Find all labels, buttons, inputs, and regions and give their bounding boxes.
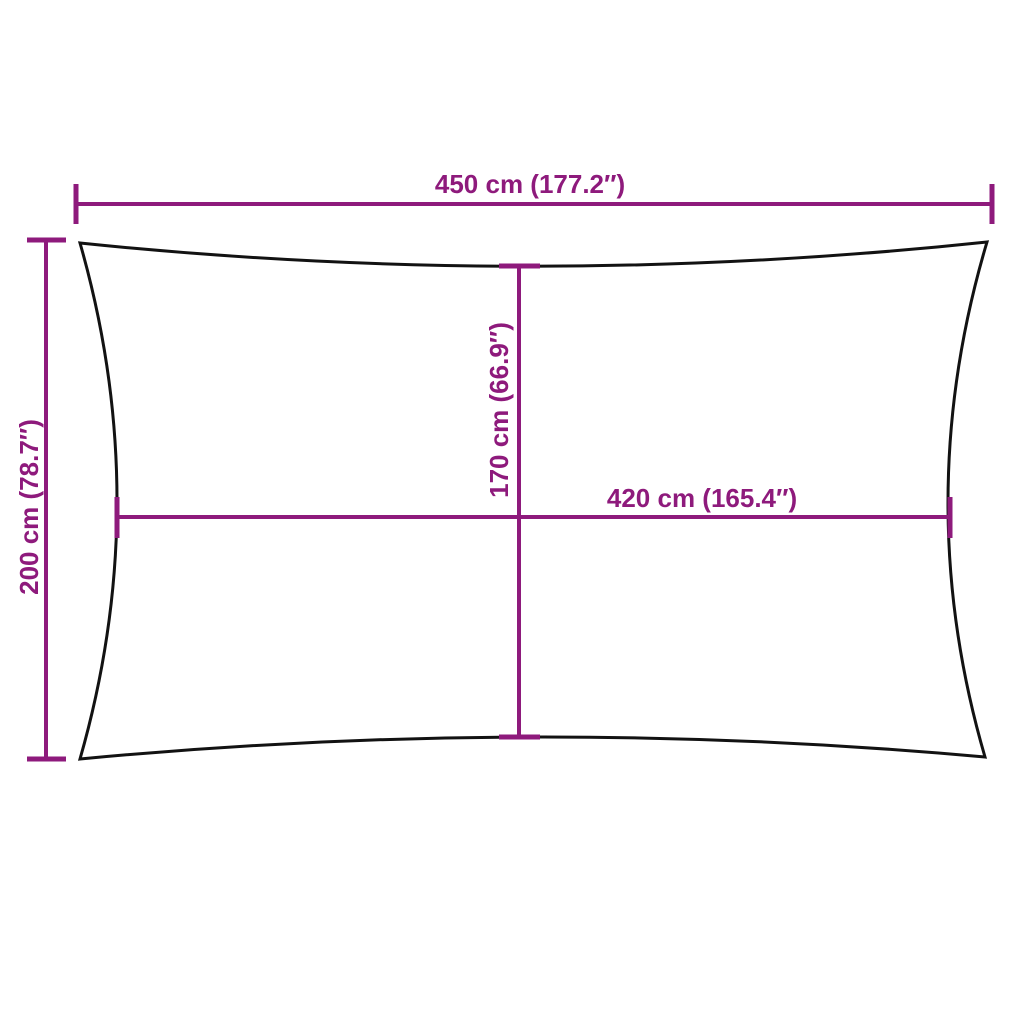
label-outer-height: 200 cm (78.7″) — [14, 419, 44, 595]
dimension-diagram: 450 cm (177.2″) 200 cm (78.7″) 170 cm (6… — [0, 0, 1024, 1024]
dimension-inner-width — [117, 497, 950, 538]
shade-sail-outline — [80, 242, 987, 759]
label-outer-width: 450 cm (177.2″) — [435, 169, 625, 199]
label-inner-width: 420 cm (165.4″) — [607, 483, 797, 513]
label-inner-height: 170 cm (66.9″) — [484, 322, 514, 498]
diagram-canvas: 450 cm (177.2″) 200 cm (78.7″) 170 cm (6… — [0, 0, 1024, 1024]
